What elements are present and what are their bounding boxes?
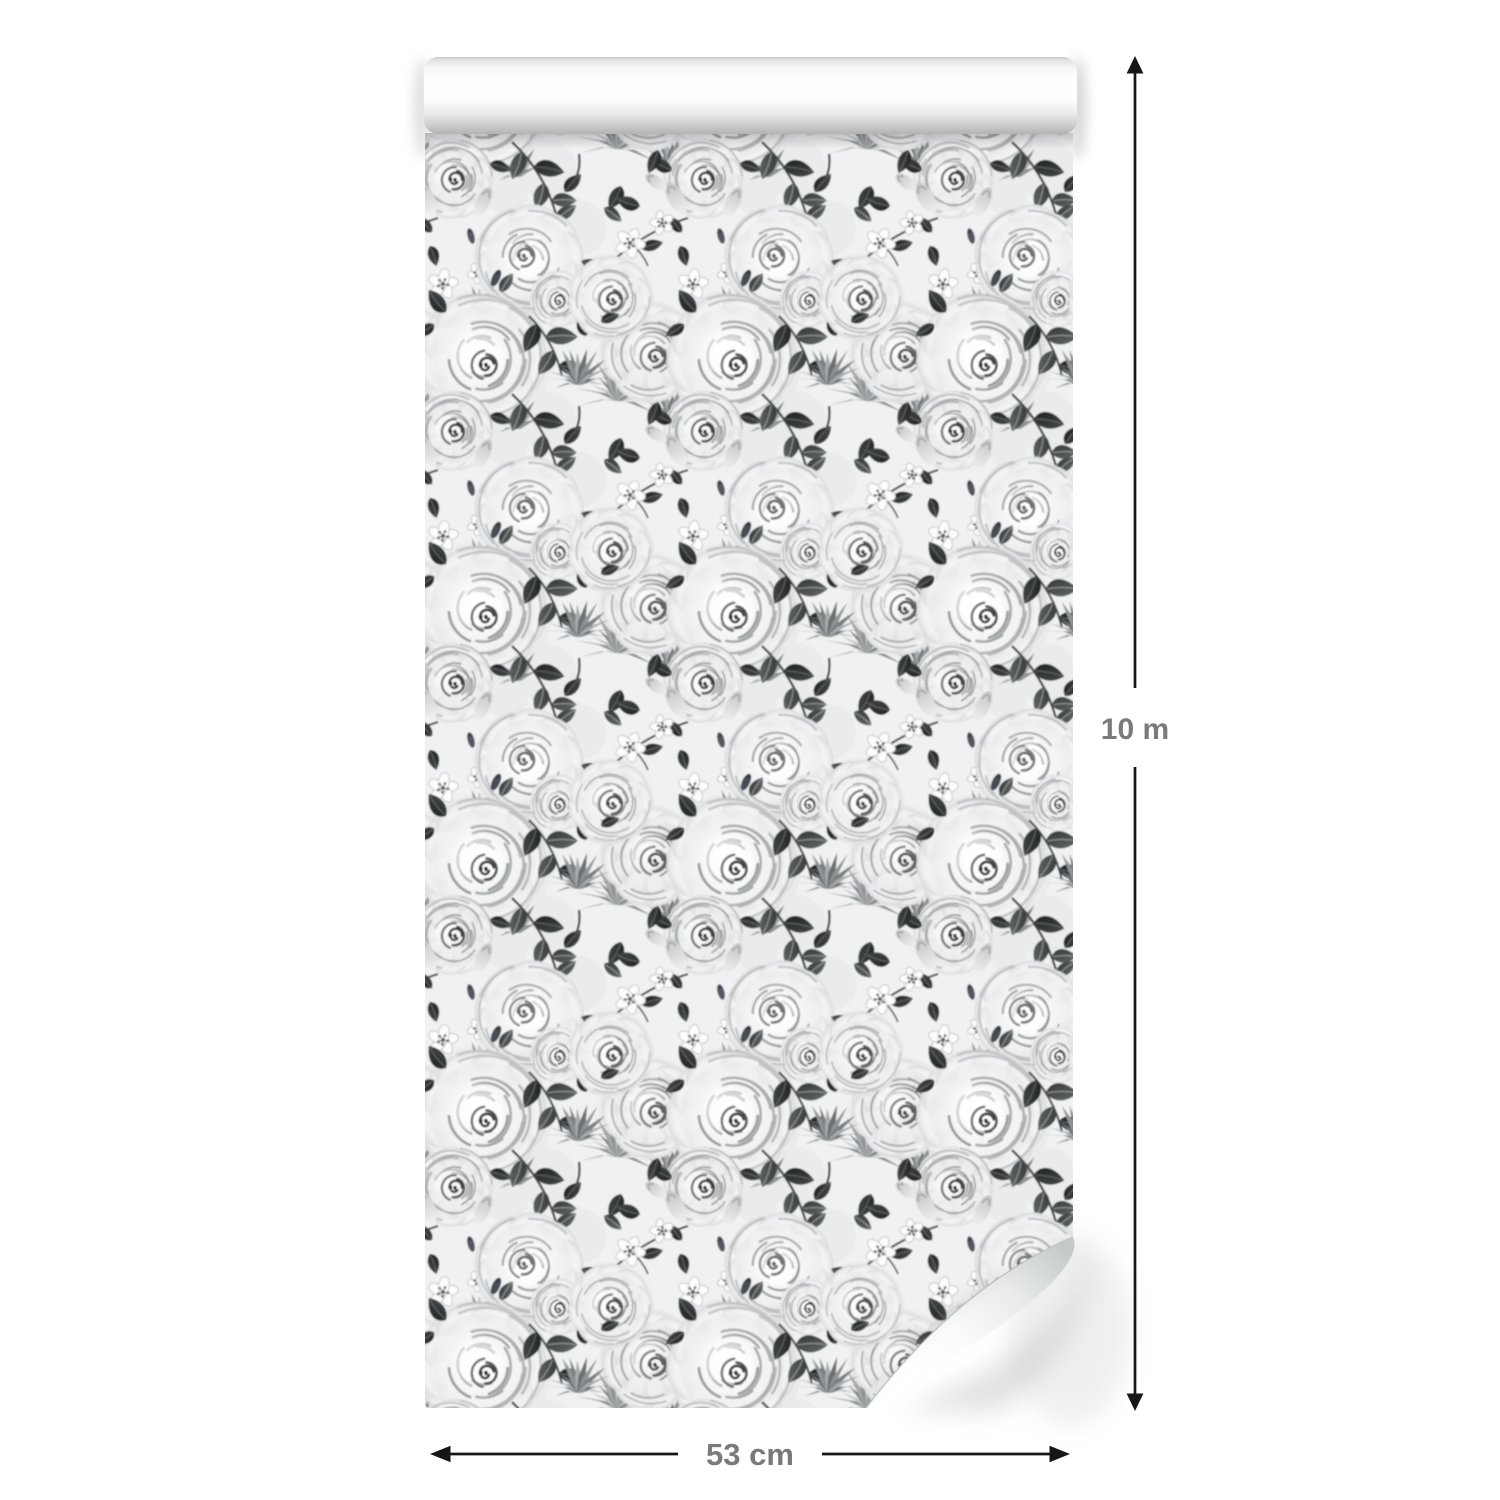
svg-text:53 cm: 53 cm [706, 1437, 794, 1472]
svg-text:10 m: 10 m [1101, 713, 1169, 746]
